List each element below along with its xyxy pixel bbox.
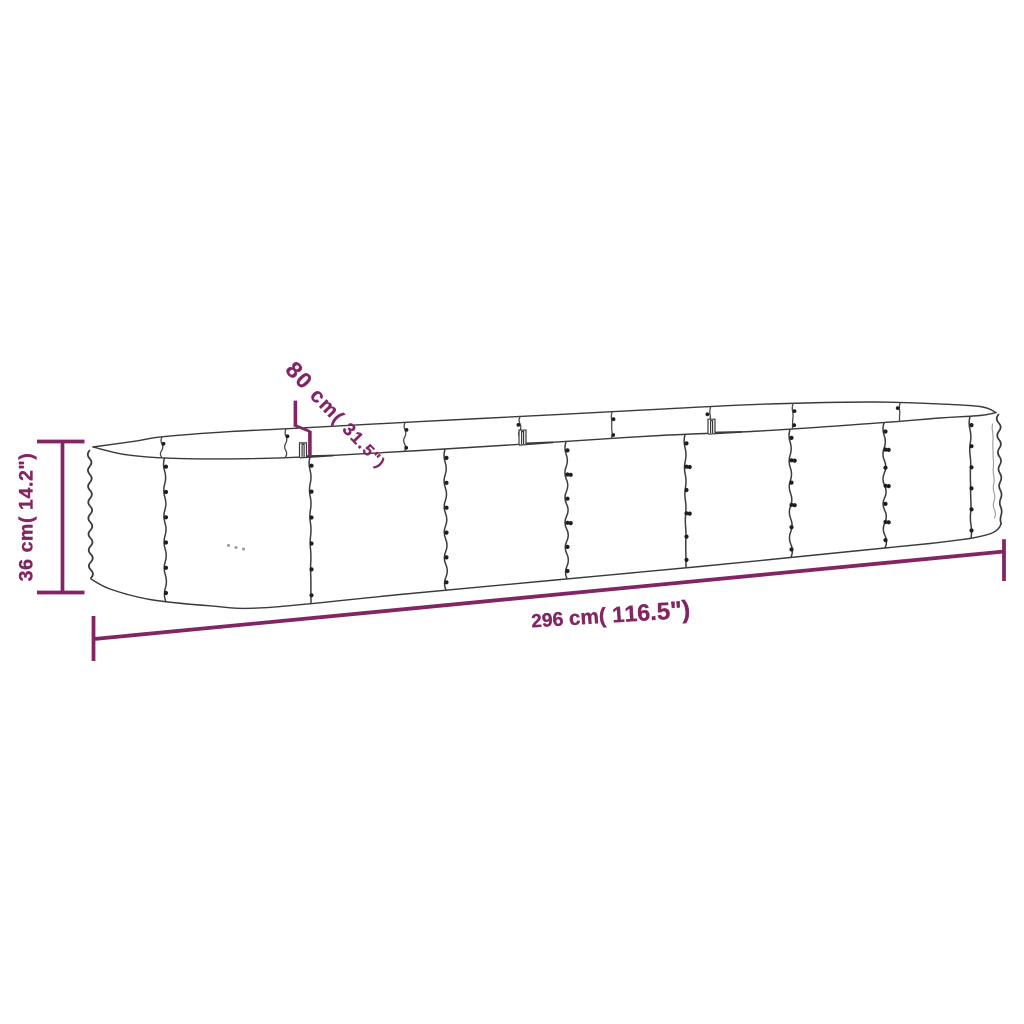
svg-text:6: 6	[552, 608, 564, 631]
svg-text:m: m	[580, 605, 600, 629]
svg-text:): )	[681, 596, 691, 624]
svg-text:36 cm( 14.2"): 36 cm( 14.2")	[16, 453, 38, 582]
